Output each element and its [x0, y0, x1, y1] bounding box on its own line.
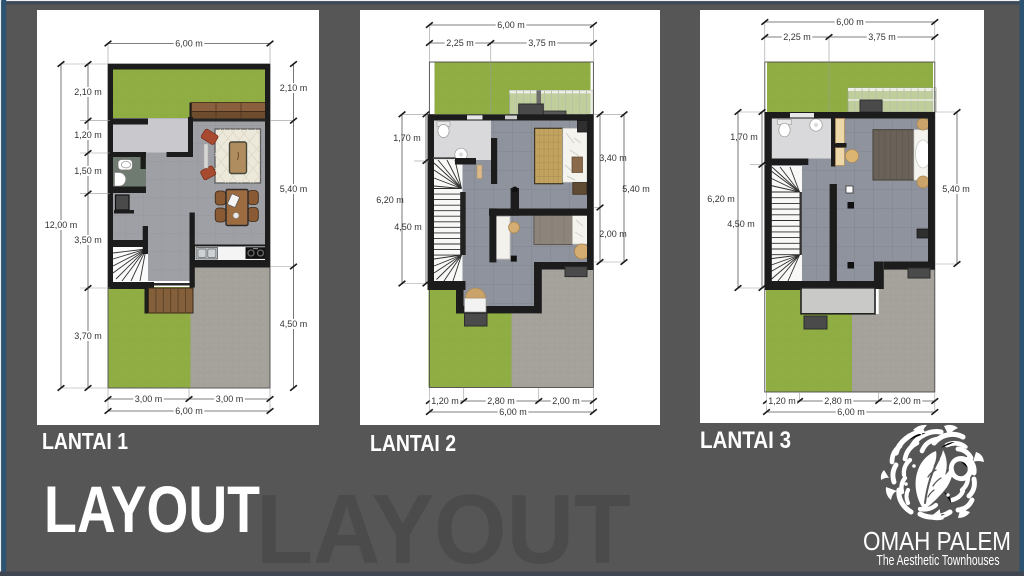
svg-text:6,00 m: 6,00 m [837, 407, 865, 417]
svg-text:6,00 m: 6,00 m [175, 39, 203, 49]
svg-text:LAYOUT: LAYOUT [256, 474, 631, 576]
svg-text:2,10 m: 2,10 m [74, 87, 102, 97]
svg-text:4,50 m: 4,50 m [280, 319, 308, 329]
svg-text:3,00 m: 3,00 m [135, 394, 163, 404]
svg-text:LANTAI 2: LANTAI 2 [370, 430, 456, 456]
svg-text:2,00 m: 2,00 m [893, 396, 921, 406]
svg-text:6,20 m: 6,20 m [376, 195, 404, 205]
svg-text:2,00 m: 2,00 m [599, 229, 627, 239]
svg-text:3,75 m: 3,75 m [868, 32, 896, 42]
svg-text:1,50 m: 1,50 m [74, 166, 102, 176]
svg-text:1,20 m: 1,20 m [74, 130, 102, 140]
svg-text:LANTAI 3: LANTAI 3 [700, 427, 791, 454]
svg-text:12,00 m: 12,00 m [45, 220, 78, 230]
svg-text:1,20 m: 1,20 m [431, 396, 459, 406]
svg-text:6,00 m: 6,00 m [499, 407, 527, 417]
svg-text:6,20 m: 6,20 m [707, 194, 735, 204]
svg-text:3,00 m: 3,00 m [216, 394, 244, 404]
svg-text:4,50 m: 4,50 m [727, 219, 755, 229]
svg-text:2,80 m: 2,80 m [487, 396, 515, 406]
svg-text:3,75 m: 3,75 m [528, 38, 556, 48]
svg-text:3,40 m: 3,40 m [599, 153, 627, 163]
svg-text:5,40 m: 5,40 m [622, 184, 650, 194]
svg-text:LANTAI 1: LANTAI 1 [42, 428, 128, 454]
svg-text:LAYOUT: LAYOUT [44, 472, 260, 546]
svg-text:2,80 m: 2,80 m [824, 396, 852, 406]
svg-text:The Aesthetic Townhouses: The Aesthetic Townhouses [877, 552, 1000, 569]
svg-text:2,25 m: 2,25 m [783, 32, 811, 42]
svg-text:2,25 m: 2,25 m [446, 38, 474, 48]
svg-text:6,00 m: 6,00 m [836, 17, 864, 27]
svg-text:2,10 m: 2,10 m [280, 83, 308, 93]
svg-text:3,70 m: 3,70 m [74, 331, 102, 341]
svg-text:5,40 m: 5,40 m [280, 184, 308, 194]
svg-text:1,70 m: 1,70 m [393, 133, 421, 143]
svg-text:1,20 m: 1,20 m [768, 396, 796, 406]
svg-text:5,40 m: 5,40 m [942, 184, 970, 194]
svg-text:1,70 m: 1,70 m [730, 132, 758, 142]
svg-text:4,50 m: 4,50 m [394, 222, 422, 232]
svg-text:6,00 m: 6,00 m [497, 20, 525, 30]
svg-text:6,00 m: 6,00 m [175, 406, 203, 416]
svg-text:3,50 m: 3,50 m [74, 235, 102, 245]
svg-text:2,00 m: 2,00 m [552, 396, 580, 406]
